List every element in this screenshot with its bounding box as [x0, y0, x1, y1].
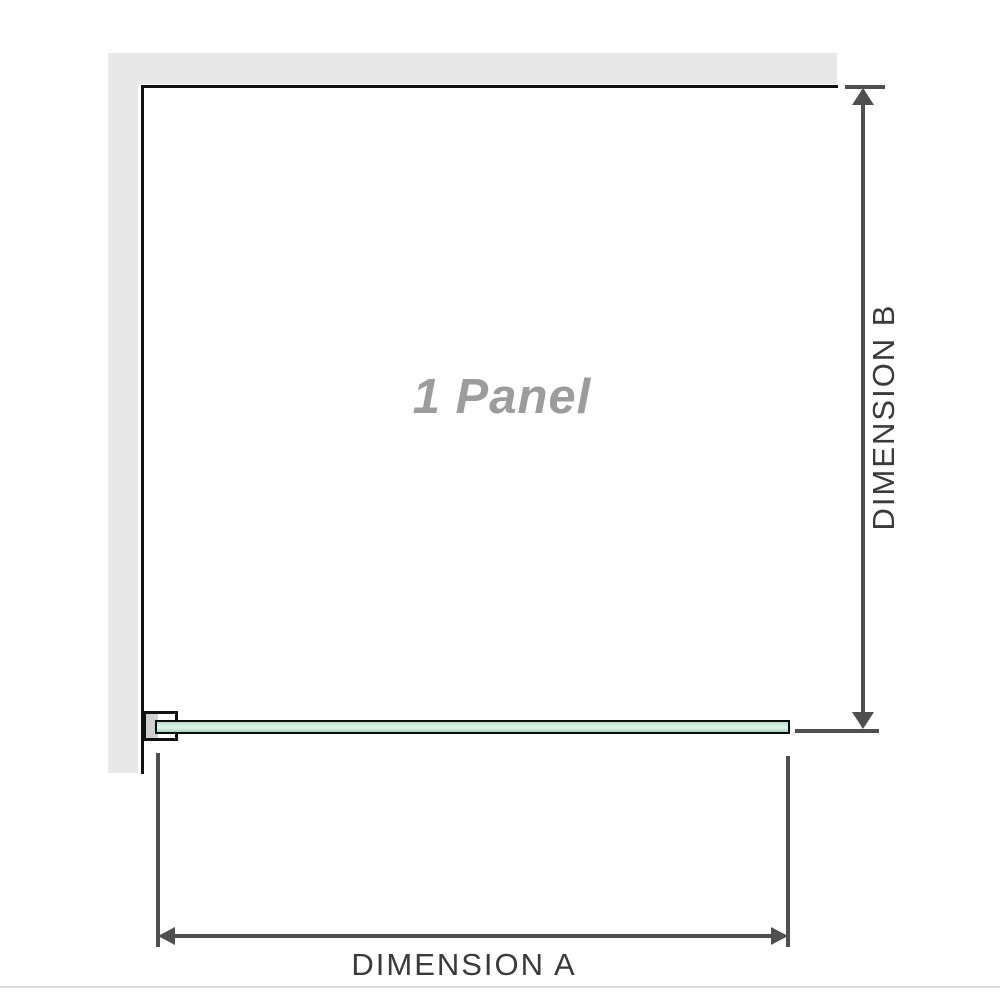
dimension-b-label: DIMENSION B [866, 304, 902, 531]
glass-panel [155, 720, 790, 734]
dimension-a-line [168, 934, 778, 938]
dimension-a-right-extension-line [786, 756, 790, 947]
panel-area-top-edge [141, 85, 838, 88]
arrow-up-icon [852, 88, 874, 105]
dimension-a-left-extension-line [156, 753, 160, 947]
arrow-right-icon [771, 927, 788, 945]
shower-panel-dimension-diagram: 1 Panel DIMENSION B DIMENSION A [0, 0, 1000, 1000]
panel-area-left-edge [141, 85, 144, 774]
bottom-divider-line [0, 986, 1000, 988]
wall-top [108, 53, 837, 84]
dimension-a-label: DIMENSION A [351, 947, 576, 983]
arrow-left-icon [158, 927, 175, 945]
dimension-b-line [861, 90, 865, 720]
arrow-down-icon [852, 712, 874, 729]
wall-left [108, 53, 138, 773]
panel-count-label: 1 Panel [413, 369, 592, 425]
dimension-b-bottom-tick [795, 729, 879, 733]
